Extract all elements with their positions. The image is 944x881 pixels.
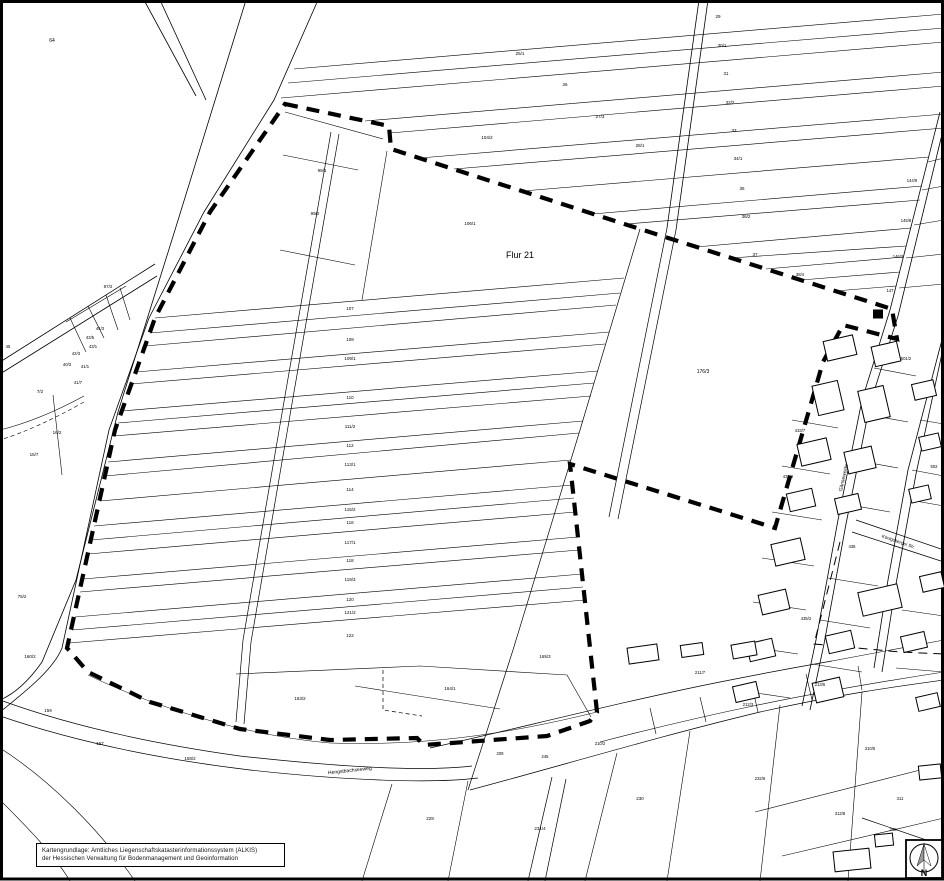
parcel-number-label: 34/1 xyxy=(734,156,743,161)
parcel-number-label: 433/7 xyxy=(795,428,806,433)
parcel-number-label: 40/3 xyxy=(63,362,72,367)
fan-line xyxy=(585,753,617,881)
parcel-number-label: 30/1 xyxy=(718,43,727,48)
parcel-number-label: 433/9 xyxy=(783,474,794,479)
map-source-disclaimer: Kartengrundlage: Amtliches Liegenschafts… xyxy=(36,843,285,867)
resi-line xyxy=(902,610,944,616)
parcel-number-label: 28/1 xyxy=(636,143,645,148)
parcel-number-label: 157 xyxy=(96,741,104,746)
corridor-mid xyxy=(600,672,944,742)
parcel-number-label: 29 xyxy=(715,14,721,19)
strip xyxy=(145,305,616,346)
building-footprint xyxy=(680,643,703,658)
inside-bottom-line xyxy=(236,666,591,717)
parcel-number-label: 36/2 xyxy=(742,214,751,219)
road-ne-1 xyxy=(890,112,940,310)
parcel-number-label: 112 xyxy=(346,443,354,448)
building-footprint xyxy=(919,572,944,593)
building-footprint xyxy=(825,630,854,653)
notch-dash xyxy=(383,670,422,716)
parcel-number-label: 115/2 xyxy=(345,507,356,512)
fan-line xyxy=(448,781,468,881)
building-footprint xyxy=(858,385,891,422)
parcel-number-label: 164/1 xyxy=(444,686,456,691)
strip xyxy=(100,460,571,501)
west-cluster xyxy=(120,288,130,320)
parcel-number-label: 229 xyxy=(426,816,434,821)
parcel-number-label: 33 xyxy=(731,128,737,133)
small-structure xyxy=(874,310,883,318)
bottom-line xyxy=(755,764,944,812)
parcel-number-label: 108 xyxy=(346,337,354,342)
resi-line xyxy=(896,668,944,672)
building-footprint xyxy=(833,848,871,872)
road-fork-2 xyxy=(160,0,206,100)
parcel-number-label: 32/2 xyxy=(726,100,735,105)
strip xyxy=(88,512,575,554)
west-cluster-arc xyxy=(0,396,84,430)
parcel-number-label: 122 xyxy=(346,633,354,638)
parcel-number-label: 109/1 xyxy=(344,356,356,361)
building-footprint xyxy=(919,433,942,451)
strip xyxy=(131,344,605,384)
parcel-number-label: 110 xyxy=(346,395,354,400)
band-lower xyxy=(0,716,478,781)
strip xyxy=(696,228,911,247)
building-footprint xyxy=(812,677,844,703)
parcel-number-label: 37 xyxy=(752,252,758,257)
resi-line xyxy=(792,420,838,428)
under-boundary-line xyxy=(88,675,597,744)
road-north-1 xyxy=(667,0,699,228)
north-compass: N xyxy=(906,840,942,878)
parcel-number-label: 27/3 xyxy=(596,114,605,119)
west-cluster xyxy=(106,295,118,330)
west-cluster xyxy=(53,395,62,475)
layer-parcel-lines xyxy=(0,0,944,881)
parcel-number-label: 41/1 xyxy=(81,364,90,369)
parcel-line xyxy=(280,250,355,265)
strip xyxy=(288,28,944,83)
resi-line xyxy=(812,664,862,672)
parcel-number-label: 106/1 xyxy=(464,221,476,226)
west-cluster xyxy=(70,318,86,352)
road-west-left xyxy=(0,0,246,700)
inside-bottom-line xyxy=(355,686,500,709)
strip xyxy=(766,257,903,269)
disclaimer-line-2: der Hessischen Verwaltung für Bodenmanag… xyxy=(42,855,280,863)
parcel-number-label: 121/2 xyxy=(344,610,356,615)
flur-label: Flur 21 xyxy=(506,250,534,260)
street-c-1 xyxy=(856,520,944,550)
resi-line xyxy=(920,420,944,424)
parcel-line xyxy=(906,254,944,258)
parcel-number-label: Gänseweide xyxy=(838,463,850,492)
parcel-number-label: Hengstbachseeweg xyxy=(328,766,373,777)
building-footprint xyxy=(909,485,932,503)
parcel-number-label: 232/6 xyxy=(755,776,766,781)
building-footprint xyxy=(901,632,928,653)
road-fork-1 xyxy=(144,0,196,96)
parcel-number-label: 118 xyxy=(346,558,354,563)
parcel-number-label: 213/5 xyxy=(815,682,826,687)
building-footprint xyxy=(733,682,760,703)
strip xyxy=(94,485,572,526)
strip xyxy=(105,433,579,476)
parcel-number-label: 26 xyxy=(562,82,568,87)
road-north-cont-1 xyxy=(609,228,667,517)
west-cluster-arc-dash xyxy=(0,402,84,440)
parcel-number-label: 435/2 xyxy=(801,616,812,621)
strip xyxy=(136,332,609,372)
parcel-number-label: 348 xyxy=(890,827,898,832)
fan-line xyxy=(760,705,780,881)
strip xyxy=(91,498,574,540)
parcel-number-label: 176/3 xyxy=(697,369,710,375)
track-2 xyxy=(244,134,339,724)
parcel-number-label: 144/9 xyxy=(907,178,918,183)
strip xyxy=(155,278,624,318)
building-footprint xyxy=(835,494,862,515)
corridor-cross xyxy=(700,697,706,722)
parcel-number-label: 31 xyxy=(723,71,729,76)
parcel-number-label: 210/2 xyxy=(595,741,606,746)
building-footprint xyxy=(627,644,659,664)
parcel-number-label: 436 xyxy=(849,544,857,549)
fan-line xyxy=(667,731,690,881)
parcel-line xyxy=(914,220,944,225)
parcel-number-label: 147 xyxy=(887,288,895,293)
disclaimer-line-1: Kartengrundlage: Amtliches Liegenschafts… xyxy=(42,847,280,855)
building-footprint xyxy=(916,693,941,712)
strip xyxy=(281,42,944,98)
building-footprint xyxy=(758,589,790,615)
building-footprint xyxy=(797,438,831,466)
strip xyxy=(72,587,583,630)
parcel-number-label: 231/4 xyxy=(534,826,546,831)
west-cluster xyxy=(66,286,126,322)
parcel-number-label: 209 xyxy=(497,751,505,756)
road-side-west-1 xyxy=(0,264,155,362)
parcel-number-label: 230 xyxy=(636,796,644,801)
parcel-number-label: 25/1 xyxy=(516,51,525,56)
parcel-number-label: 159 xyxy=(44,708,52,713)
parcel-number-label: 163/2 xyxy=(294,696,306,701)
parcel-number-label: 113/1 xyxy=(345,462,356,467)
parcel-number-label: 312/8 xyxy=(835,811,846,816)
parcel-number-label: 43/5 xyxy=(86,335,95,340)
street-c-2 xyxy=(852,532,944,562)
band-upper xyxy=(0,700,472,768)
strip xyxy=(80,550,579,592)
parcel-number-label: 99/2 xyxy=(311,211,320,216)
parcel-number-label: 44/3 xyxy=(96,326,105,331)
parcel-number-label: 119/3 xyxy=(345,577,356,582)
building-footprint xyxy=(812,380,844,415)
cadastral-map-sheet: 6497/244/343/543/142/340/341/141/77/216/… xyxy=(0,0,944,881)
parcel-number-label: 45 xyxy=(6,344,11,349)
parcel-number-label: 120 xyxy=(346,597,354,602)
layer-labels: 6497/244/343/543/142/340/341/141/77/216/… xyxy=(6,14,938,832)
corridor-cross xyxy=(806,674,812,700)
parcel-number-label: 64 xyxy=(49,38,55,44)
parcel-number-label: 116 xyxy=(346,520,354,525)
building-footprint xyxy=(823,335,857,361)
parcel-number-label: 111/2 xyxy=(345,424,356,429)
strip xyxy=(69,600,585,643)
parcel-number-label: 43/1 xyxy=(89,344,98,349)
corridor-cross xyxy=(858,666,862,690)
parcel-number-label: 211/7 xyxy=(695,670,706,675)
bottom-left-line xyxy=(0,800,70,881)
building-footprint xyxy=(771,538,805,566)
building-footprint xyxy=(918,764,941,780)
parcel-number-label: 212/3 xyxy=(743,702,754,707)
parcel-line xyxy=(362,151,387,300)
parcel-number-label: 38/4 xyxy=(796,272,805,277)
strip xyxy=(592,186,922,214)
parcel-number-label: 107 xyxy=(346,306,354,311)
parcel-number-label: 502 xyxy=(931,464,939,469)
parcel-number-label: 311 xyxy=(897,796,904,801)
strip xyxy=(454,128,944,169)
parcel-number-label: 501/2 xyxy=(901,356,912,361)
building-footprint xyxy=(871,341,901,366)
strip xyxy=(294,14,944,69)
map-canvas: 6497/244/343/543/142/340/341/141/77/216/… xyxy=(0,0,944,881)
strip xyxy=(801,272,900,280)
resi-line xyxy=(782,466,830,474)
strip xyxy=(83,537,578,579)
track-1 xyxy=(236,132,331,722)
parcel-number-label: 245 xyxy=(542,754,550,759)
parcel-number-label: 160/2 xyxy=(24,654,36,659)
parcel-number-label: 146/2 xyxy=(893,254,904,259)
parcel-number-label: 145/8 xyxy=(901,218,912,223)
strip xyxy=(114,396,591,436)
strip xyxy=(118,383,594,423)
building-footprint xyxy=(874,833,893,847)
corridor-upper xyxy=(430,661,832,748)
strip xyxy=(122,371,598,411)
building-footprint xyxy=(858,584,902,616)
parcel-number-label: 75/2 xyxy=(18,594,27,599)
strip xyxy=(390,86,944,133)
road-side-west-2 xyxy=(0,276,157,374)
strip xyxy=(150,293,620,333)
building-footprint xyxy=(786,488,815,511)
compass-north-label: N xyxy=(921,868,928,878)
parcel-number-label: 104/2 xyxy=(481,135,493,140)
parcel-number-label: 16/2 xyxy=(53,430,62,435)
parcel-number-label: 114 xyxy=(346,487,354,492)
parcel-number-label: 42/3 xyxy=(72,351,81,356)
strip xyxy=(523,157,929,191)
road-west-right xyxy=(0,0,318,712)
parcel-number-label: 310/5 xyxy=(865,746,876,751)
parcel-number-label: 35 xyxy=(739,186,745,191)
parcel-number-label: 7/2 xyxy=(37,389,44,394)
corridor-cross xyxy=(650,708,656,734)
layer-buildings xyxy=(627,310,944,872)
parcel-number-label: 97/2 xyxy=(104,284,113,289)
parcel-number-label: 15/7 xyxy=(30,452,39,457)
parcel-number-label: 165/3 xyxy=(539,654,551,659)
resi-line xyxy=(912,470,944,476)
field-edge xyxy=(468,229,640,790)
parcel-number-label: 158/2 xyxy=(184,756,196,761)
parcel-number-label: 41/7 xyxy=(74,380,83,385)
strip xyxy=(75,574,582,617)
parcel-number-label: 117/1 xyxy=(345,540,356,545)
parcel-number-label: 99/1 xyxy=(318,168,327,173)
parcel-line xyxy=(922,186,944,190)
strip xyxy=(365,72,944,121)
fan-line xyxy=(362,784,392,881)
